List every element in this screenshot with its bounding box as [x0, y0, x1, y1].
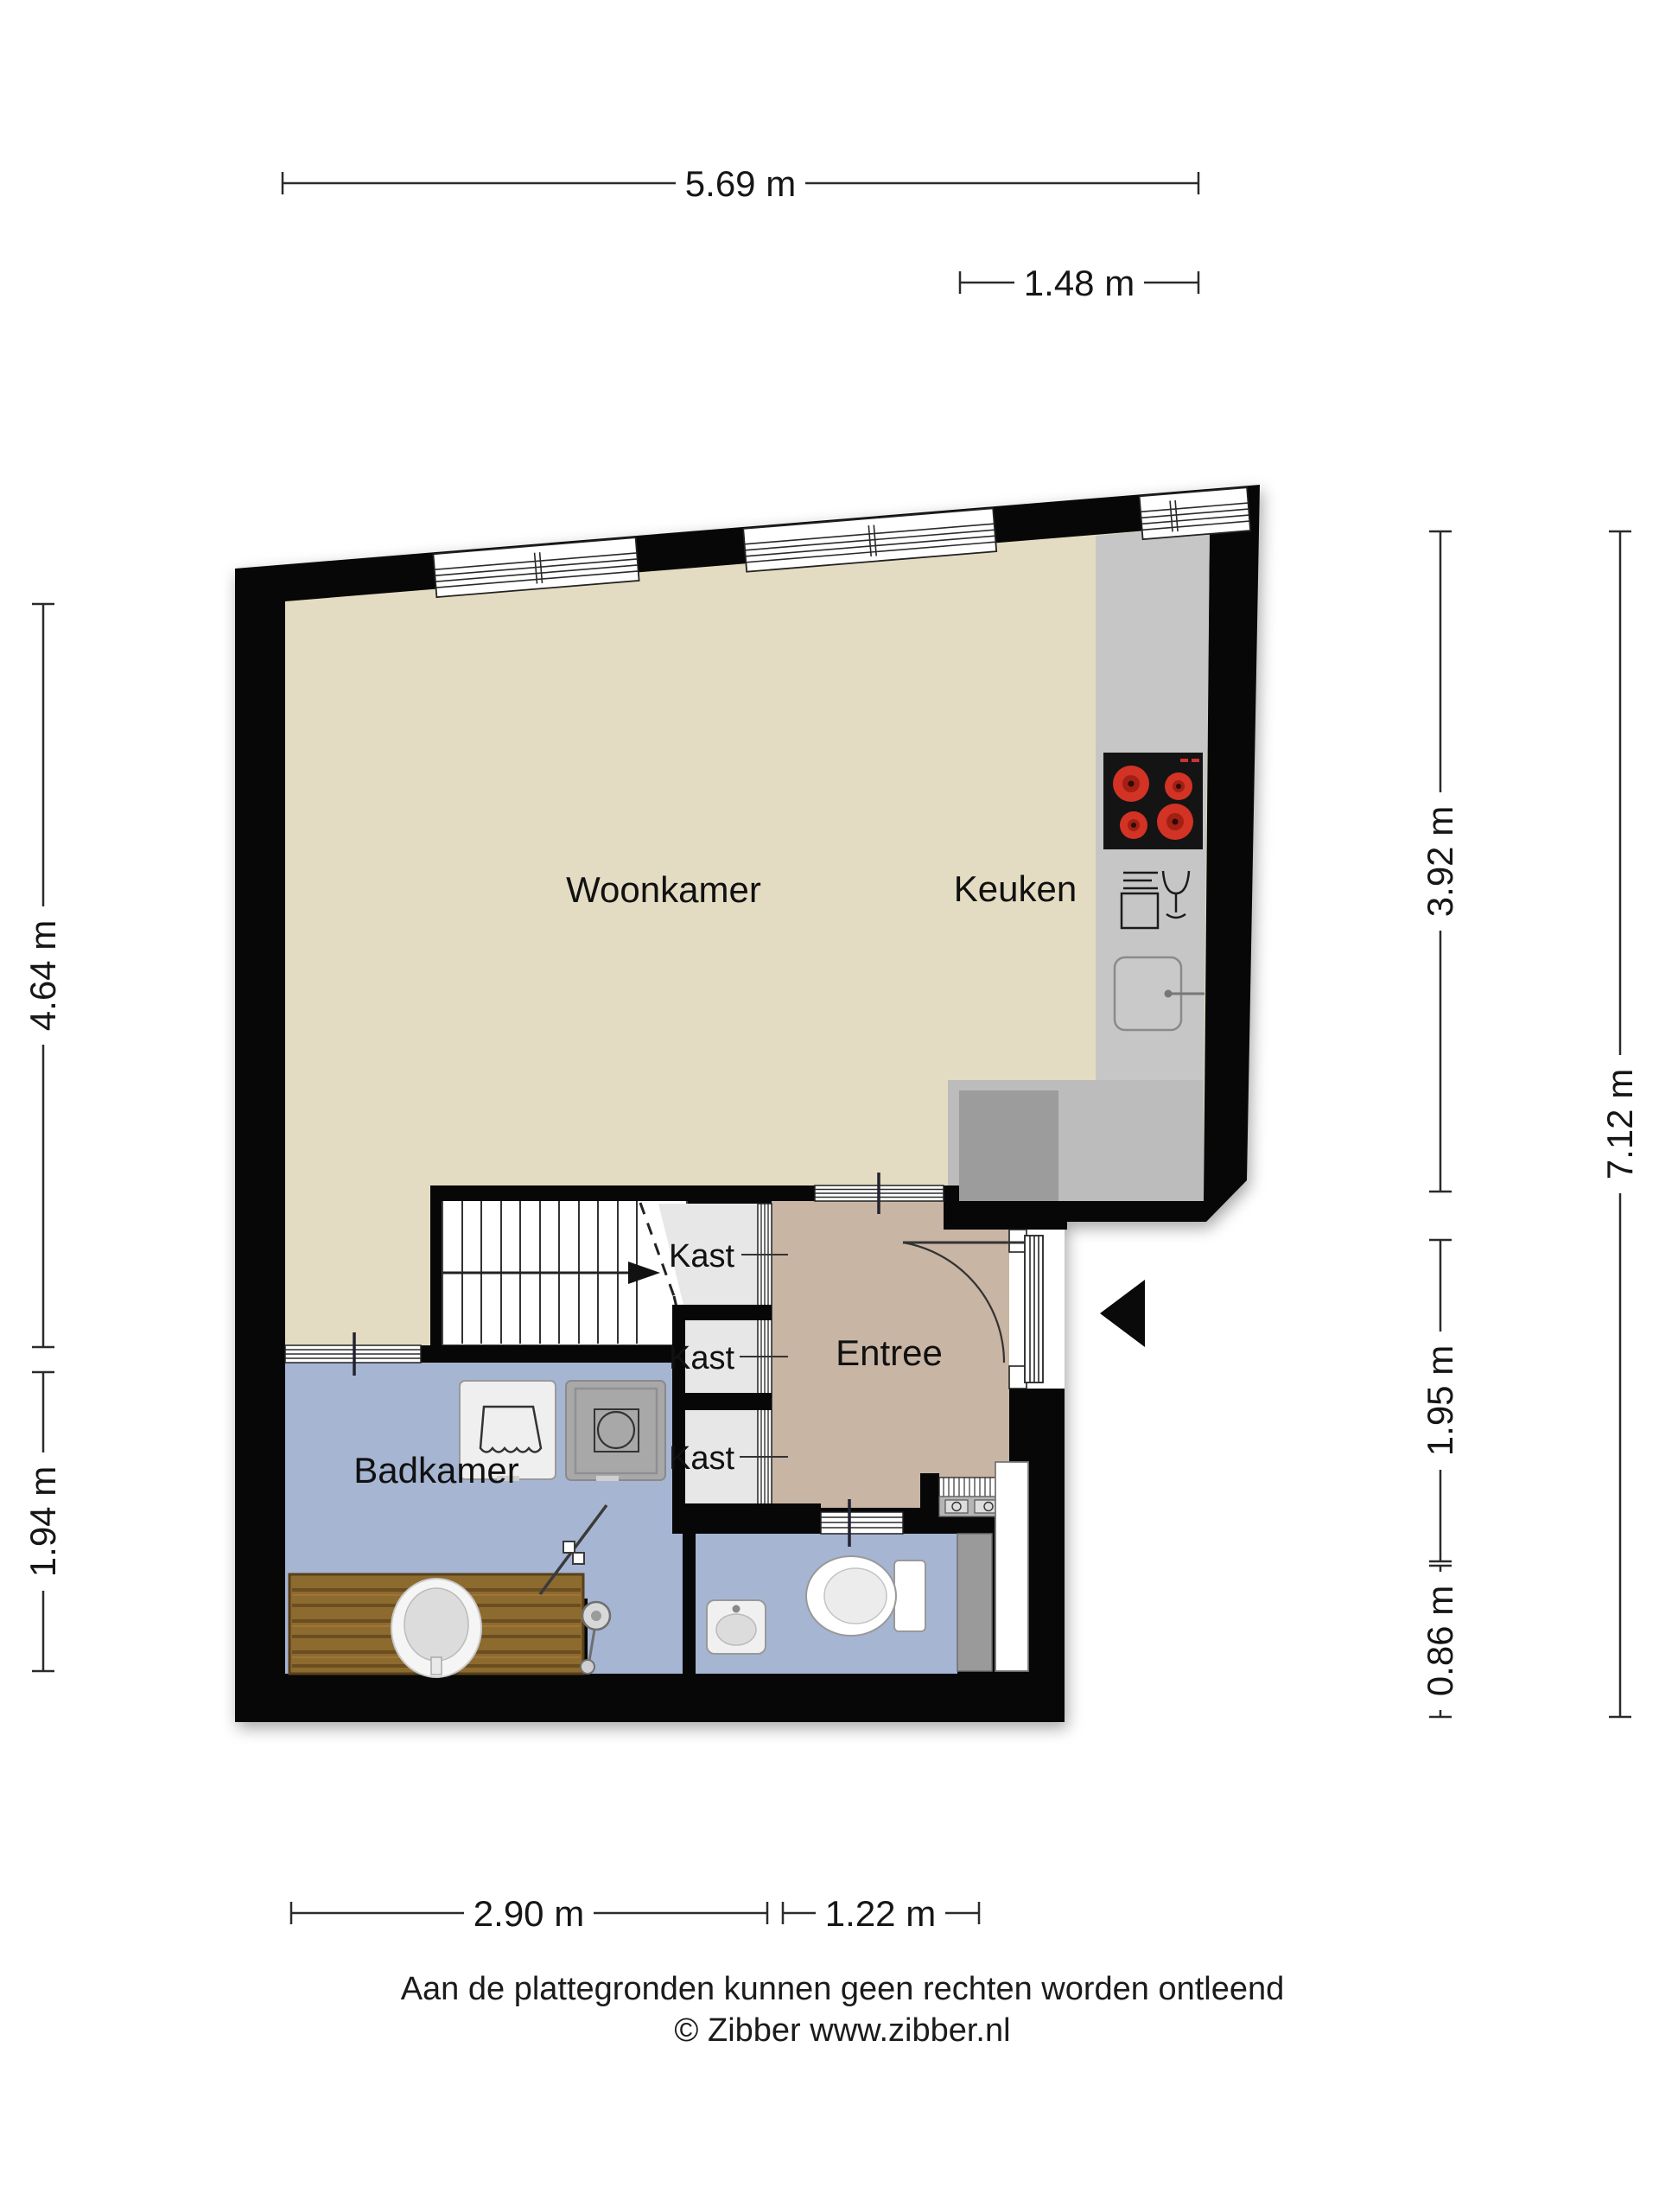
svg-text:7.12 m: 7.12 m	[1599, 1069, 1640, 1179]
dryer-icon	[566, 1381, 665, 1481]
svg-text:1.94 m: 1.94 m	[22, 1466, 63, 1577]
dimension-top-width: 5.69 m	[283, 161, 1198, 206]
toilet-icon	[806, 1556, 925, 1636]
hand-basin-icon	[707, 1600, 766, 1654]
svg-text:Kast: Kast	[669, 1238, 734, 1274]
entrance-arrow-icon	[1100, 1280, 1145, 1347]
svg-text:3.92 m: 3.92 m	[1420, 806, 1460, 917]
dimension-right-lower: 0.86 m	[1417, 1566, 1464, 1717]
svg-text:4.64 m: 4.64 m	[22, 920, 63, 1031]
label-woonkamer: Woonkamer	[566, 869, 761, 910]
label-keuken: Keuken	[954, 868, 1077, 909]
floorplan-canvas: Woonkamer Keuken Badkamer Entree Kast Ka…	[0, 0, 1659, 2212]
dimension-right-upper: 3.92 m	[1417, 531, 1464, 1192]
svg-text:Kast: Kast	[669, 1340, 734, 1376]
dimension-right-total: 7.12 m	[1597, 531, 1643, 1717]
vanity-sink-icon	[391, 1579, 481, 1677]
svg-text:1.22 m: 1.22 m	[825, 1893, 936, 1934]
svg-text:Kast: Kast	[669, 1440, 734, 1477]
duct-icon	[957, 1534, 992, 1671]
label-entree: Entree	[836, 1332, 943, 1373]
footer-disclaimer: Aan de plattegronden kunnen geen rechten…	[401, 1971, 1285, 2007]
cooktop-icon	[1103, 753, 1203, 849]
dimension-bottom-left: 2.90 m	[291, 1891, 767, 1935]
dimension-bottom-right: 1.22 m	[783, 1891, 979, 1935]
dimension-right-mid: 1.95 m	[1417, 1240, 1464, 1561]
stairs-icon	[442, 1199, 687, 1345]
svg-text:1.48 m: 1.48 m	[1024, 263, 1135, 303]
kast-doors-icon	[758, 1204, 772, 1512]
svg-text:5.69 m: 5.69 m	[685, 163, 796, 204]
floorplan-page: Woonkamer Keuken Badkamer Entree Kast Ka…	[0, 0, 1659, 2212]
dimension-left-upper: 4.64 m	[20, 604, 67, 1347]
shaft-icon	[995, 1462, 1028, 1671]
window-icon	[1140, 487, 1251, 539]
label-badkamer: Badkamer	[353, 1450, 518, 1491]
front-door-icon	[1009, 1230, 1065, 1389]
svg-text:1.95 m: 1.95 m	[1420, 1345, 1460, 1456]
dimension-left-lower: 1.94 m	[20, 1372, 67, 1671]
svg-text:2.90 m: 2.90 m	[474, 1893, 584, 1934]
svg-text:0.86 m: 0.86 m	[1420, 1586, 1460, 1696]
kitchen-cabinet-block	[959, 1090, 1058, 1201]
dimension-top-right-width: 1.48 m	[960, 260, 1198, 305]
footer-copyright: © Zibber www.zibber.nl	[674, 2012, 1010, 2049]
